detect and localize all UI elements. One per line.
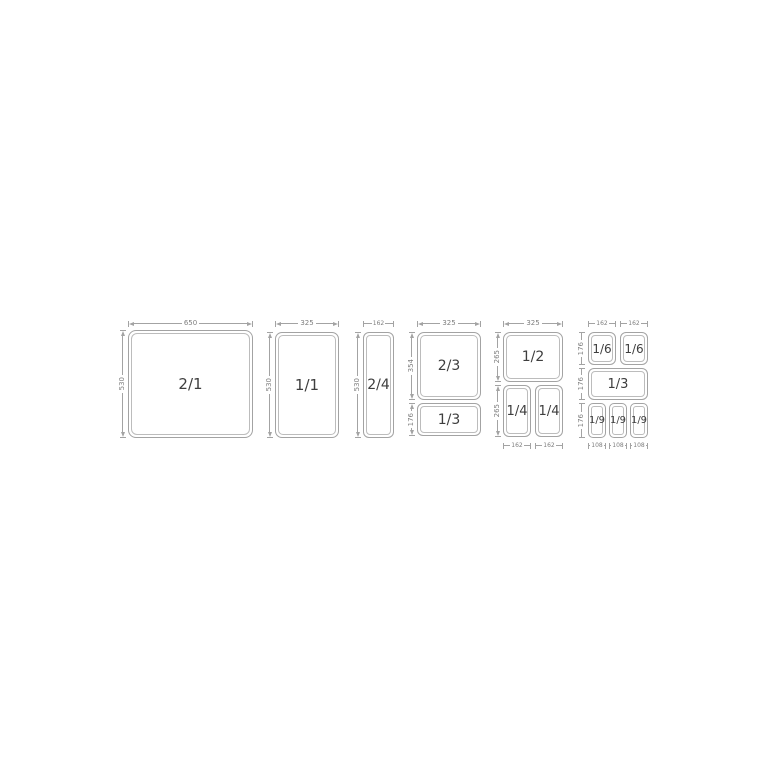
pan-1-9: 1/9 [609, 403, 627, 438]
pan-1-6-label: 1/6 [624, 343, 643, 355]
group-gn-1-6-1-3-1-9: 162 162 176 176 176 1/6 1/6 [0, 0, 770, 770]
pan-1-9: 1/9 [588, 403, 606, 438]
width-dimension: 162 [620, 319, 648, 328]
pan-1-3-label: 1/3 [608, 378, 629, 391]
height-dimension-label: 176 [578, 375, 585, 392]
height-dimension: 176 [577, 332, 586, 365]
height-dimension-label: 176 [578, 412, 585, 429]
pan-1-9-label: 1/9 [610, 416, 626, 426]
bottom-width-dimension: 108 [630, 441, 648, 450]
width-dimension-label: 162 [595, 321, 608, 327]
height-dimension: 176 [577, 403, 586, 438]
pan-1-6: 1/6 [588, 332, 616, 365]
width-dimension: 162 [588, 319, 616, 328]
pan-1-3: 1/3 [588, 368, 648, 400]
height-dimension: 176 [577, 368, 586, 400]
bottom-width-dimension: 108 [609, 441, 627, 450]
bottom-width-dimension: 108 [588, 441, 606, 450]
pan-1-9-label: 1/9 [589, 416, 605, 426]
height-dimension-label: 176 [578, 340, 585, 357]
pan-1-6: 1/6 [620, 332, 648, 365]
width-dimension-label: 162 [627, 321, 640, 327]
pan-1-6-label: 1/6 [592, 343, 611, 355]
bottom-width-dimension-label: 108 [611, 443, 624, 449]
pan-1-9: 1/9 [630, 403, 648, 438]
bottom-width-dimension-label: 108 [632, 443, 645, 449]
bottom-width-dimension-label: 108 [590, 443, 603, 449]
gn-pan-sizes-diagram: 650 530 2/1 325 530 1/1 162 [0, 0, 770, 770]
pan-1-9-label: 1/9 [631, 416, 647, 426]
